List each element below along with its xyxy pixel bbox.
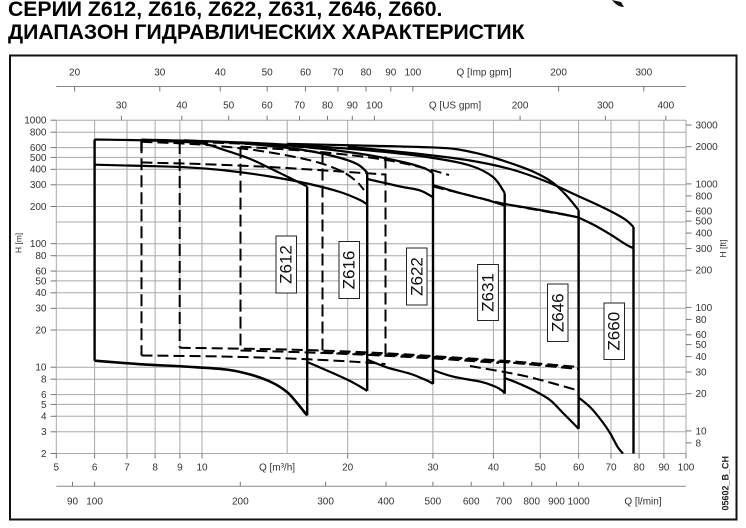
svg-text:4: 4 bbox=[41, 412, 47, 423]
svg-text:9: 9 bbox=[177, 463, 183, 474]
svg-text:300: 300 bbox=[30, 180, 47, 191]
svg-text:70: 70 bbox=[332, 68, 344, 79]
svg-text:30: 30 bbox=[427, 463, 439, 474]
svg-text:500: 500 bbox=[425, 497, 442, 508]
svg-text:05602_B_CH: 05602_B_CH bbox=[721, 456, 731, 511]
svg-text:60: 60 bbox=[262, 101, 274, 112]
svg-text:50: 50 bbox=[35, 276, 47, 287]
svg-text:400: 400 bbox=[696, 229, 713, 240]
svg-text:10: 10 bbox=[35, 363, 47, 374]
svg-text:800: 800 bbox=[30, 128, 47, 139]
svg-text:20: 20 bbox=[35, 325, 47, 336]
svg-text:10: 10 bbox=[696, 426, 708, 437]
svg-text:60: 60 bbox=[300, 68, 312, 79]
svg-text:400: 400 bbox=[657, 101, 674, 112]
svg-text:600: 600 bbox=[463, 497, 480, 508]
svg-text:200: 200 bbox=[232, 497, 249, 508]
svg-text:200: 200 bbox=[30, 202, 47, 213]
svg-text:200: 200 bbox=[550, 68, 567, 79]
svg-text:Z646: Z646 bbox=[548, 293, 567, 332]
svg-text:30: 30 bbox=[116, 101, 128, 112]
svg-text:8: 8 bbox=[41, 375, 47, 386]
svg-text:H [ft]: H [ft] bbox=[718, 240, 728, 258]
svg-text:8: 8 bbox=[696, 438, 702, 449]
svg-text:300: 300 bbox=[635, 68, 652, 79]
svg-text:Q [US gpm]: Q [US gpm] bbox=[429, 101, 481, 112]
svg-text:10: 10 bbox=[196, 463, 208, 474]
svg-text:400: 400 bbox=[378, 497, 395, 508]
svg-text:2000: 2000 bbox=[696, 142, 719, 153]
svg-text:100: 100 bbox=[366, 101, 383, 112]
svg-text:1000: 1000 bbox=[24, 116, 47, 127]
svg-text:40: 40 bbox=[696, 352, 708, 363]
svg-text:90: 90 bbox=[347, 101, 359, 112]
svg-text:50: 50 bbox=[262, 68, 274, 79]
svg-text:900: 900 bbox=[548, 497, 565, 508]
svg-text:100: 100 bbox=[678, 463, 695, 474]
svg-text:40: 40 bbox=[35, 288, 47, 299]
svg-text:800: 800 bbox=[523, 497, 540, 508]
svg-text:5: 5 bbox=[54, 463, 60, 474]
svg-text:100: 100 bbox=[405, 68, 422, 79]
svg-text:300: 300 bbox=[317, 497, 334, 508]
svg-text:Z660: Z660 bbox=[605, 312, 624, 351]
svg-text:50: 50 bbox=[535, 463, 547, 474]
svg-text:800: 800 bbox=[696, 191, 713, 202]
svg-text:1000: 1000 bbox=[567, 497, 590, 508]
svg-text:Z631: Z631 bbox=[479, 273, 498, 312]
svg-text:200: 200 bbox=[512, 101, 529, 112]
svg-text:Q [m³/h]: Q [m³/h] bbox=[259, 463, 295, 474]
svg-text:20: 20 bbox=[696, 389, 708, 400]
svg-text:90: 90 bbox=[385, 68, 397, 79]
svg-text:5: 5 bbox=[41, 400, 47, 411]
svg-text:3: 3 bbox=[41, 427, 47, 438]
svg-text:500: 500 bbox=[30, 153, 47, 164]
svg-text:6: 6 bbox=[92, 463, 98, 474]
svg-text:100: 100 bbox=[86, 497, 103, 508]
svg-text:80: 80 bbox=[360, 68, 372, 79]
svg-text:90: 90 bbox=[658, 463, 670, 474]
svg-text:60: 60 bbox=[573, 463, 585, 474]
svg-text:Z622: Z622 bbox=[407, 257, 426, 296]
svg-text:1000: 1000 bbox=[696, 179, 719, 190]
svg-text:Z616: Z616 bbox=[340, 251, 359, 290]
svg-text:50: 50 bbox=[696, 340, 708, 351]
svg-text:20: 20 bbox=[342, 463, 354, 474]
svg-text:Z612: Z612 bbox=[277, 245, 296, 284]
svg-text:30: 30 bbox=[154, 68, 166, 79]
svg-text:200: 200 bbox=[696, 266, 713, 277]
svg-text:8: 8 bbox=[152, 463, 158, 474]
svg-text:100: 100 bbox=[30, 239, 47, 250]
svg-text:40: 40 bbox=[488, 463, 500, 474]
svg-text:Q [l/min]: Q [l/min] bbox=[624, 497, 661, 508]
svg-text:300: 300 bbox=[696, 244, 713, 255]
svg-text:700: 700 bbox=[495, 497, 512, 508]
svg-text:70: 70 bbox=[294, 101, 306, 112]
svg-text:80: 80 bbox=[35, 251, 47, 262]
svg-text:90: 90 bbox=[67, 497, 79, 508]
svg-text:70: 70 bbox=[605, 463, 617, 474]
svg-text:80: 80 bbox=[322, 101, 334, 112]
svg-text:40: 40 bbox=[215, 68, 227, 79]
svg-text:30: 30 bbox=[696, 367, 708, 378]
svg-text:40: 40 bbox=[176, 101, 188, 112]
svg-text:Q [Imp gpm]: Q [Imp gpm] bbox=[456, 68, 511, 79]
svg-text:H [m]: H [m] bbox=[14, 233, 24, 253]
svg-text:7: 7 bbox=[124, 463, 130, 474]
svg-text:20: 20 bbox=[69, 68, 81, 79]
svg-text:400: 400 bbox=[30, 165, 47, 176]
svg-text:80: 80 bbox=[696, 315, 708, 326]
svg-text:80: 80 bbox=[634, 463, 646, 474]
svg-text:2: 2 bbox=[41, 449, 47, 460]
svg-text:300: 300 bbox=[597, 101, 614, 112]
svg-text:50: 50 bbox=[223, 101, 235, 112]
svg-text:100: 100 bbox=[696, 303, 713, 314]
svg-text:500: 500 bbox=[696, 217, 713, 228]
svg-text:3000: 3000 bbox=[696, 120, 719, 131]
svg-text:30: 30 bbox=[35, 304, 47, 315]
